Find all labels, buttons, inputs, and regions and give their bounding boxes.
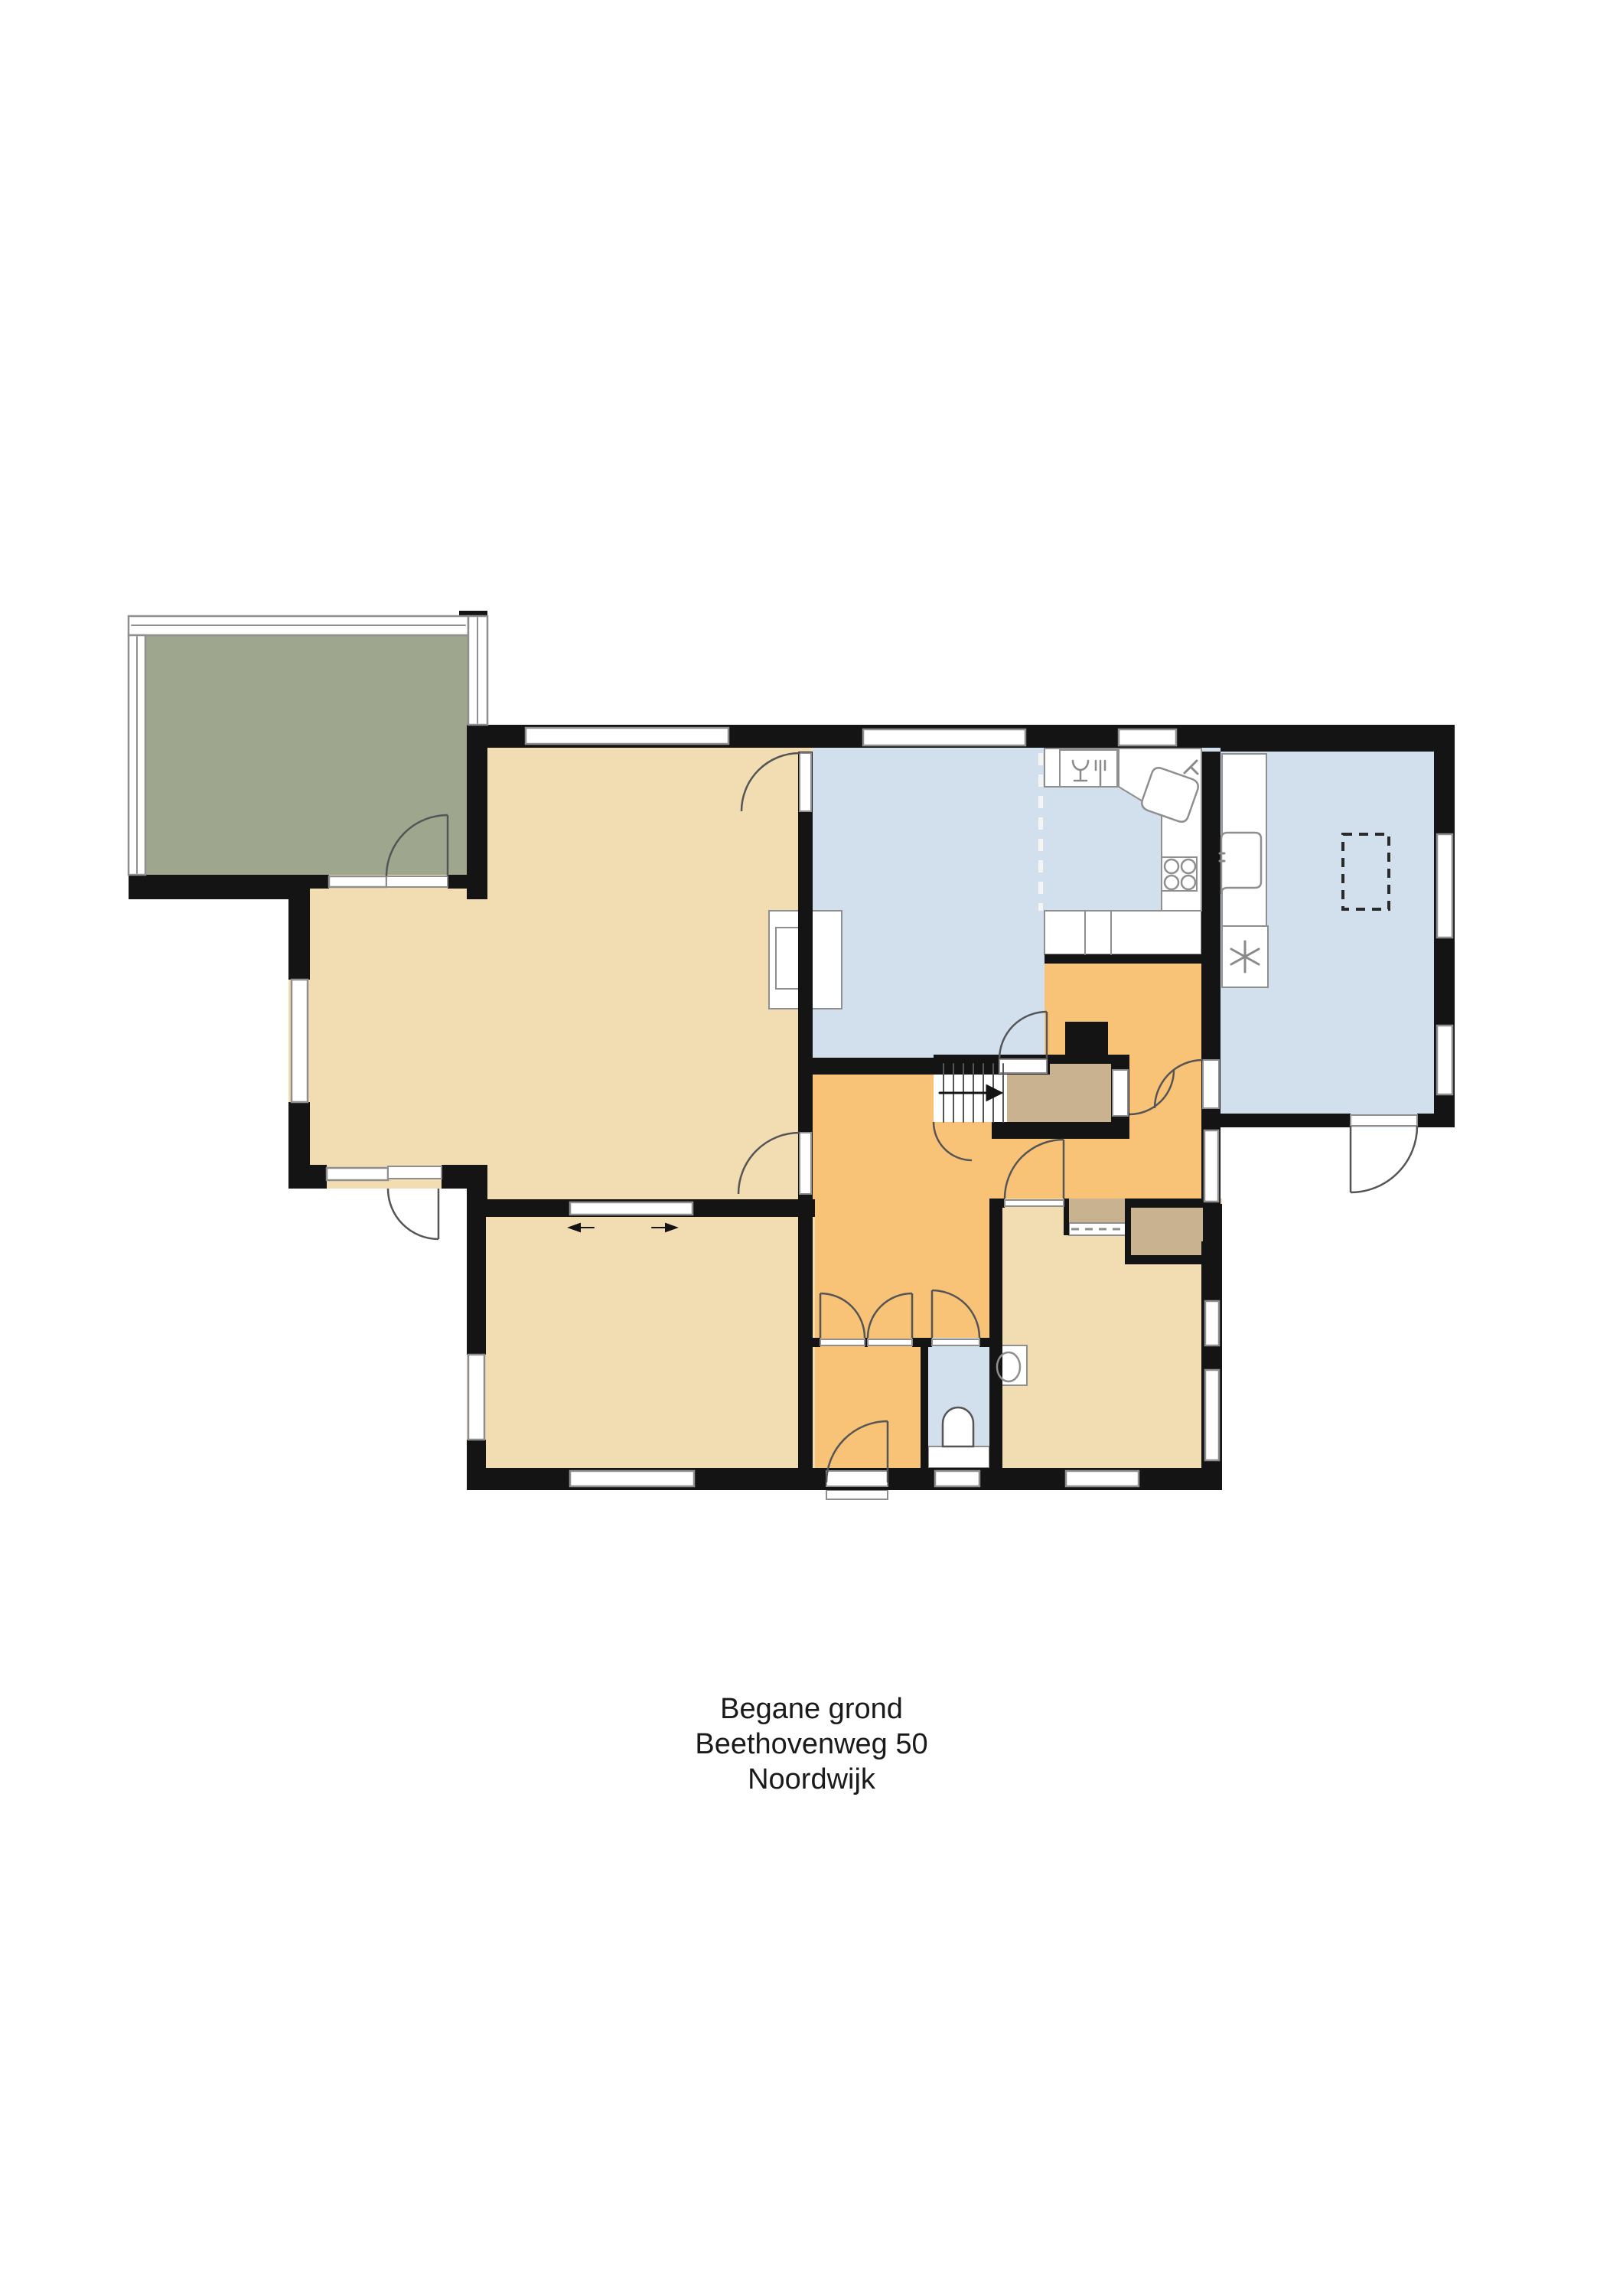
toilet-vanity [928,1446,989,1468]
window-kantoor-east-1 [1205,1301,1219,1345]
window-bijkeuken-east-1 [1437,834,1452,938]
room-mk [1131,1204,1203,1261]
window-kantoor-east-2 [1205,1370,1219,1460]
wall-hal-entree-3 [912,1338,932,1347]
door-woonkeuken-hal [999,1059,1047,1073]
wall-ext-bottom-left [288,1165,327,1189]
wall-kast-left [1064,1199,1069,1235]
window-eetkamer-north [570,1202,693,1215]
door-woonkamer-woonkeuken [800,753,811,811]
wall-north-bijkeuken [1221,725,1455,752]
wall-hal-entree-1 [806,1338,820,1347]
room-woonkamer [467,725,813,1217]
wall-kelder-bottom [992,1122,1129,1139]
window-toilet-south [935,1471,979,1486]
floorplan-canvas [0,0,1623,2296]
door-garden [388,1166,442,1179]
plan-title-address: Beethovenweg 50 [0,1727,1623,1762]
wall-eetkamer-west-1 [467,1217,486,1355]
door-woonkamer-hal [800,1133,811,1194]
window-woonkamer-north [526,728,728,744]
wall-balkon-row-right [448,875,487,889]
door-kelder [1113,1070,1128,1116]
door-kantoor [1005,1200,1064,1206]
door-toilet [932,1339,979,1345]
plan-title-floor: Begane grond [0,1691,1623,1727]
arc-garden-door [388,1189,438,1239]
door-entree-left [820,1339,865,1345]
wall-cabinets [1045,954,1221,964]
plan-title-city: Noordwijk [0,1762,1623,1797]
entree-step [826,1490,888,1499]
door-front [826,1471,888,1486]
wall-balkon-bottom [129,875,300,899]
room-woonkamer-ext [288,875,487,1189]
door-bijkeuken-west [1203,1060,1219,1108]
wall-hal-entree-4 [979,1338,989,1347]
wall-ext-bottom-right [442,1165,487,1189]
window-keuken-north-2 [1119,729,1176,745]
window-ext-bottom [327,1168,388,1180]
wall-bijkeuken-south-left [1221,1114,1351,1127]
dishwasher-unit [1060,750,1117,787]
wall-kast-right [1126,1199,1131,1235]
wall-kantoor-west [989,1208,1002,1468]
toilet-bowl [943,1407,973,1446]
wall-toilet-left [921,1345,928,1468]
window-woonkamer-west [292,980,308,1102]
fireplace-inner [776,928,802,989]
wall-kantoor-north [989,1199,1005,1208]
window-eetkamer-south [570,1471,694,1486]
wall-center-column [798,752,813,1468]
floorplan-page: Begane grond Beethovenweg 50 Noordwijk [0,0,1623,2296]
wall-west-upper [467,725,487,899]
window-hal-east [1204,1130,1218,1202]
wall-mk-top [1125,1199,1203,1208]
window-bijkeuken-east-2 [1437,1026,1452,1094]
room-eetkamer [467,1199,815,1490]
door-entree-right [868,1339,912,1345]
window-kantoor-south [1066,1471,1139,1486]
kitchen-lower-cabinets [1045,911,1201,954]
wall-balkon-row-left [300,875,329,889]
wall-west-1 [288,889,310,980]
plan-title: Begane grond Beethovenweg 50 Noordwijk [0,1691,1623,1797]
window-balkon-wall [329,876,386,887]
arc-bijkeuken-south-door [1351,1126,1417,1192]
door-balkon [386,876,448,887]
room-entree [806,1338,921,1490]
window-eetkamer-west [468,1355,484,1440]
room-balkon [129,616,487,899]
sink-bijkeuken [1221,833,1261,894]
door-bijkeuken-south [1351,1115,1417,1126]
window-keuken-north-1 [863,729,1025,745]
wall-step [467,1189,487,1217]
